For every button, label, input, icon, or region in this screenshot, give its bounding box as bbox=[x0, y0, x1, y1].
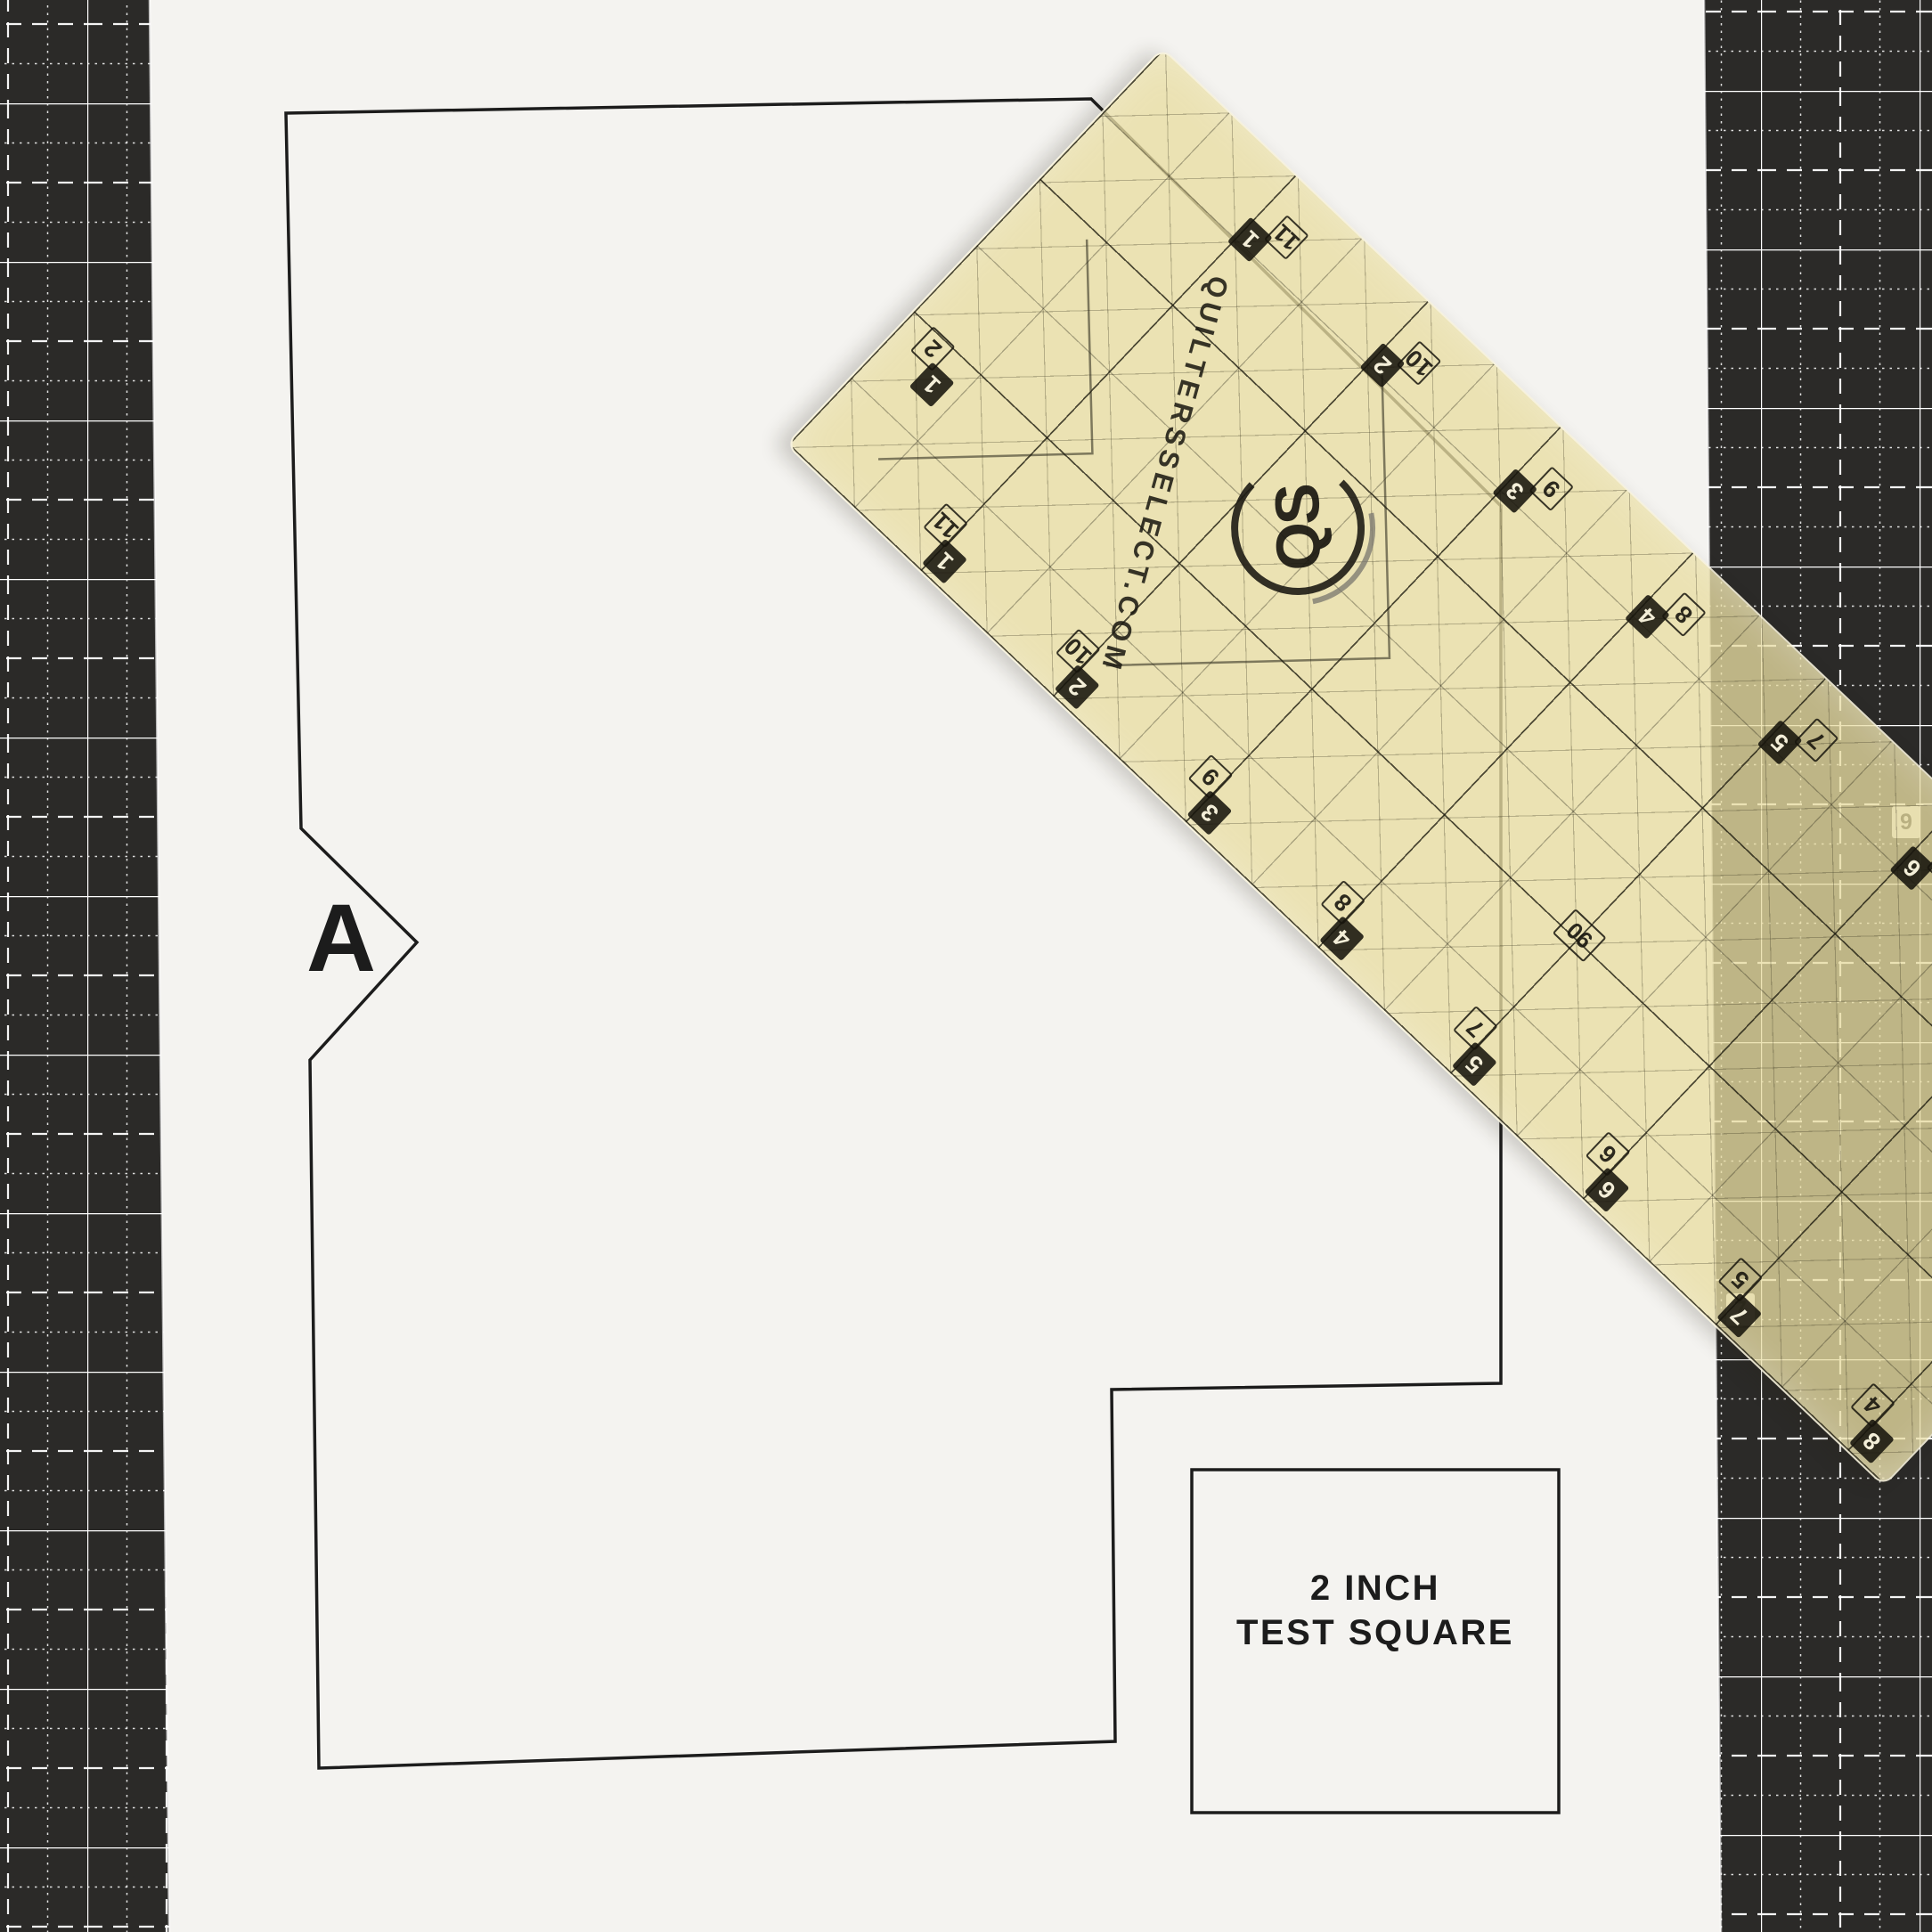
photo-scene: A 2 INCH TEST SQUARE 9 7 QUILTERSSELECT.… bbox=[0, 0, 1932, 1932]
test-square-line2: TEST SQUARE bbox=[1192, 1610, 1559, 1655]
ruler-logo-letters: QS bbox=[1220, 451, 1375, 606]
pattern-piece-letter: A bbox=[283, 882, 399, 993]
test-square-line1: 2 INCH bbox=[1192, 1566, 1559, 1610]
ruler-logo: QS bbox=[1220, 451, 1375, 606]
test-square-caption: 2 INCH TEST SQUARE bbox=[1192, 1566, 1559, 1655]
